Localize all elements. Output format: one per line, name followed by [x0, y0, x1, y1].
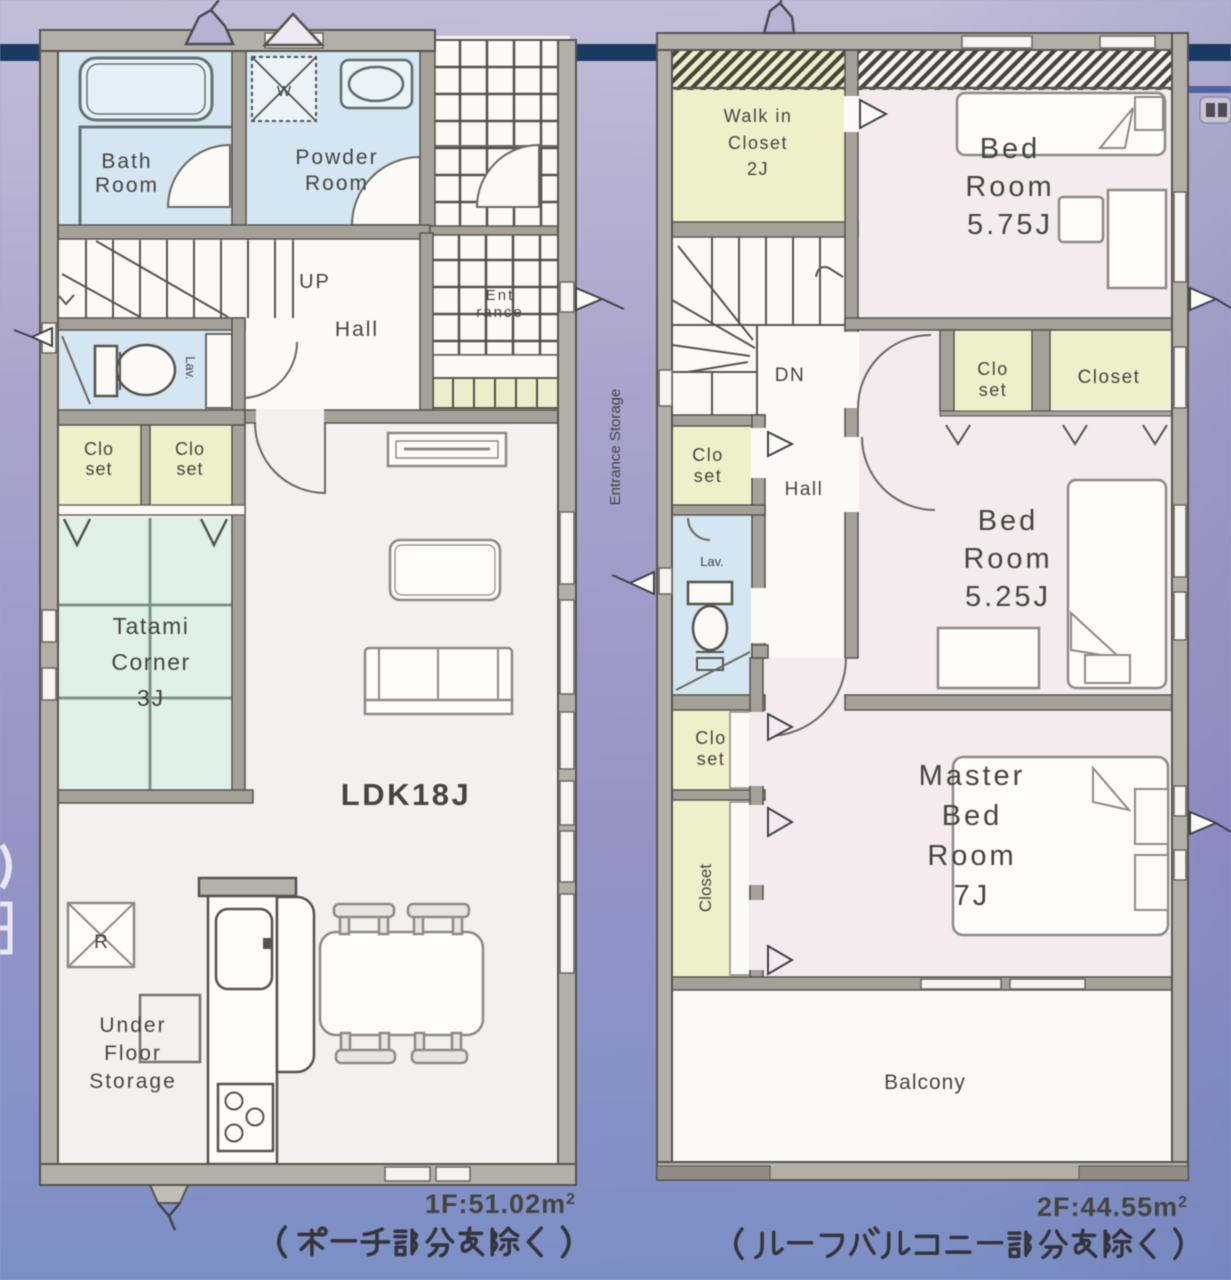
svg-text:Clo: Clo — [977, 359, 1009, 379]
svg-text:Clo: Clo — [175, 439, 205, 459]
svg-text:R: R — [94, 932, 108, 953]
svg-text:rance: rance — [476, 304, 524, 321]
svg-text:Room: Room — [927, 840, 1016, 872]
svg-text:Corner: Corner — [111, 649, 190, 675]
svg-text:Bed: Bed — [980, 133, 1041, 165]
svg-text:set: set — [694, 466, 723, 486]
svg-text:set: set — [85, 459, 112, 479]
svg-text:2F:44.55m2: 2F:44.55m2 — [1037, 1192, 1188, 1222]
svg-text:Room: Room — [963, 543, 1052, 575]
svg-text:Master: Master — [919, 760, 1026, 792]
svg-text:Powder: Powder — [295, 146, 378, 169]
svg-text:Lav.: Lav. — [183, 356, 198, 380]
svg-text:Room: Room — [95, 174, 159, 197]
svg-text:2J: 2J — [747, 159, 769, 179]
svg-text:Closet: Closet — [728, 133, 788, 153]
svg-text:Under: Under — [99, 1014, 166, 1037]
svg-text:set: set — [697, 749, 726, 769]
svg-text:Closet: Closet — [696, 864, 715, 912]
svg-text:Ent: Ent — [486, 287, 515, 304]
svg-text:Hall: Hall — [335, 318, 379, 341]
svg-text:Floor: Floor — [104, 1042, 162, 1065]
svg-text:set: set — [979, 380, 1008, 400]
svg-text:Tatami: Tatami — [113, 613, 190, 639]
svg-text:Closet: Closet — [1078, 367, 1141, 388]
svg-text:5.75J: 5.75J — [967, 209, 1053, 241]
svg-text:Room: Room — [305, 172, 369, 195]
svg-text:LDK18J: LDK18J — [341, 777, 471, 812]
svg-text:Bed: Bed — [942, 800, 1003, 832]
svg-text:Clo: Clo — [84, 439, 114, 459]
svg-text:1F:51.02m2: 1F:51.02m2 — [425, 1189, 576, 1219]
svg-text:Walk in: Walk in — [724, 106, 793, 126]
svg-text:3J: 3J — [137, 685, 165, 711]
svg-text:Hall: Hall — [785, 479, 824, 500]
svg-text:7J: 7J — [954, 880, 991, 912]
svg-text:5.25J: 5.25J — [965, 581, 1051, 613]
svg-text:DN: DN — [775, 365, 805, 386]
svg-text:Clo: Clo — [692, 445, 724, 465]
svg-text:UP: UP — [299, 271, 331, 293]
svg-text:W: W — [277, 83, 292, 100]
svg-text:Entrance Storage: Entrance Storage — [607, 389, 624, 506]
svg-text:Bath: Bath — [101, 150, 152, 173]
svg-text:Storage: Storage — [89, 1070, 177, 1093]
svg-text:Lav.: Lav. — [700, 554, 724, 569]
svg-text:Bed: Bed — [978, 505, 1039, 537]
svg-text:Balcony: Balcony — [884, 1071, 966, 1094]
svg-text:Clo: Clo — [695, 728, 727, 748]
svg-text:Room: Room — [965, 171, 1054, 203]
svg-text:set: set — [176, 459, 203, 479]
